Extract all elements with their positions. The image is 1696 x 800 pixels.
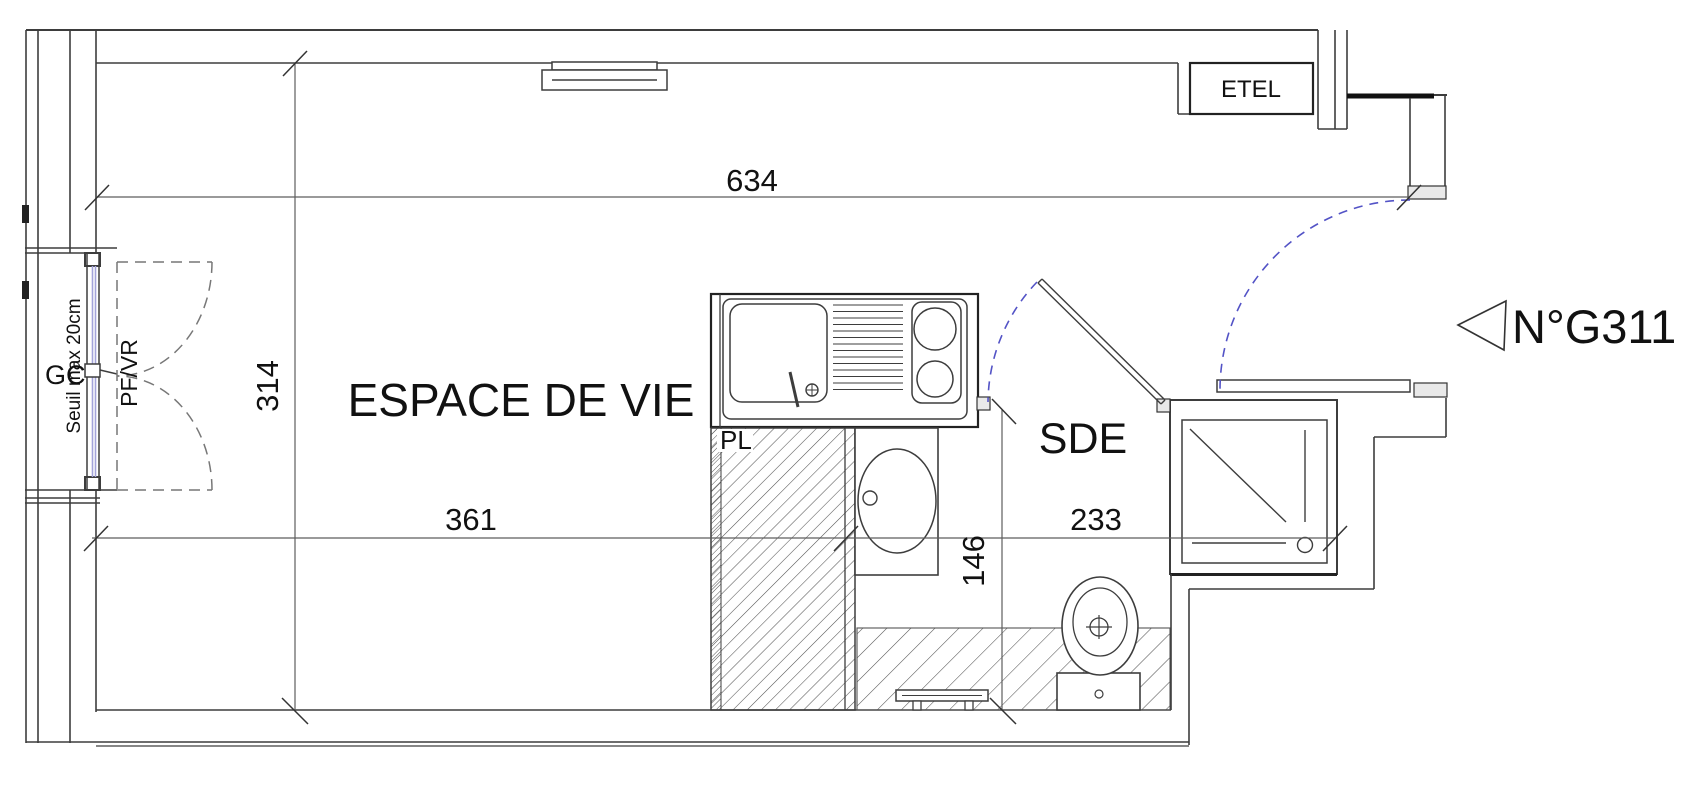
threshold-note: Seuil max 20cm <box>64 298 85 433</box>
living-room-label: ESPACE DE VIE <box>348 374 695 426</box>
unit-number-label: N°G311 <box>1512 300 1676 353</box>
dim-living-width: 361 <box>445 502 497 537</box>
entry-door <box>1220 186 1447 397</box>
dim-total-width: 634 <box>726 163 778 198</box>
floor-plan-drawing: ETEL P <box>0 0 1696 800</box>
wall-radiator <box>542 62 667 90</box>
dim-shower-room-width: 233 <box>1070 502 1122 537</box>
electrical-panel-box: ETEL <box>1190 63 1313 114</box>
unit-entry-marker: N°G311 <box>1458 300 1676 353</box>
dim-total-depth: 314 <box>250 360 285 412</box>
drainboard <box>833 305 903 390</box>
shower-room-door <box>977 279 1170 412</box>
dim-shower-room-depth: 146 <box>956 535 991 587</box>
toilet <box>1057 577 1140 710</box>
cooktop-burners <box>912 302 961 403</box>
closet-label: PL <box>720 425 752 455</box>
kitchenette <box>711 294 978 427</box>
shower-room-door-swing <box>988 282 1037 402</box>
entry-arrow-icon <box>1458 301 1506 350</box>
floor-plan: ETEL P <box>0 0 1696 800</box>
electrical-panel-label: ETEL <box>1221 76 1281 103</box>
washbasin <box>855 428 938 575</box>
window-type-label: PF/VR <box>116 339 142 407</box>
kitchen-sink <box>730 304 827 407</box>
closet: PL <box>711 425 855 710</box>
shower-room-label: SDE <box>1039 415 1127 463</box>
entry-door-swing <box>1220 200 1410 390</box>
